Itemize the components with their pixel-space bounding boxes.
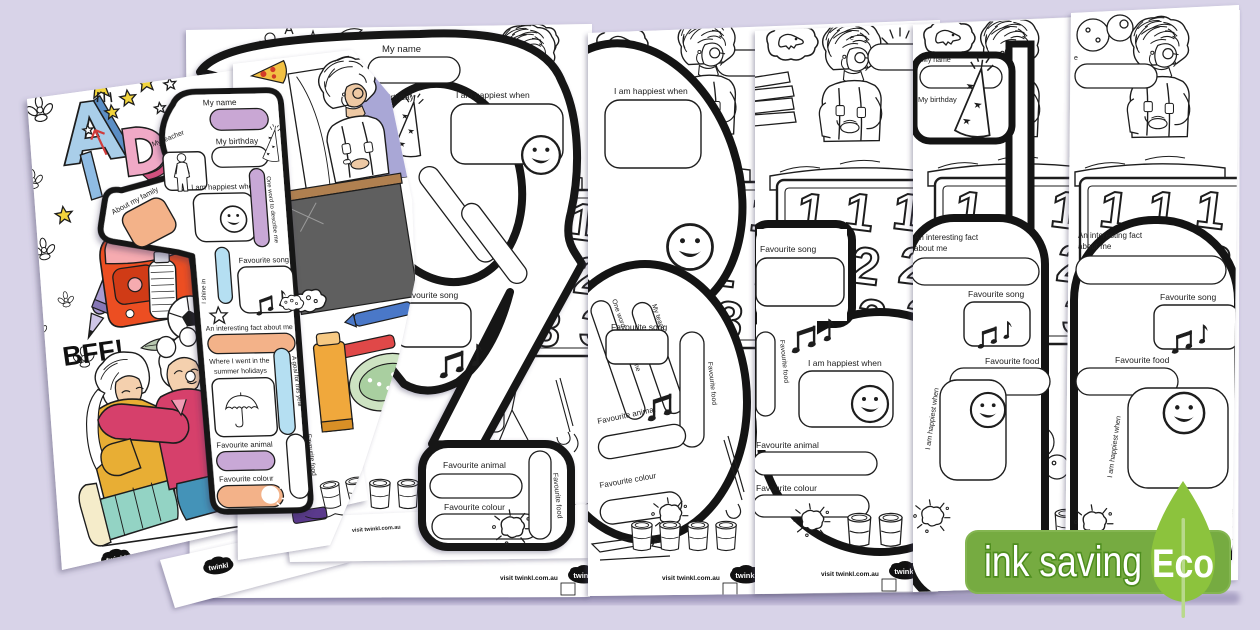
svg-text:e: e	[850, 35, 854, 42]
svg-text:An interesting fact: An interesting fact	[1078, 231, 1143, 240]
svg-text:Favourite song: Favourite song	[1160, 292, 1216, 302]
svg-text:Favourite song: Favourite song	[760, 244, 816, 254]
svg-text:Favourite colour: Favourite colour	[444, 502, 505, 512]
svg-text:I am happiest when: I am happiest when	[614, 86, 688, 96]
svg-text:about me: about me	[1078, 242, 1112, 251]
svg-text:I am happiest when: I am happiest when	[808, 358, 882, 368]
svg-text:My name: My name	[922, 57, 951, 64]
svg-text:An interesting fact: An interesting fact	[914, 233, 979, 242]
svg-text:My name: My name	[382, 44, 421, 55]
svg-text:visit twinkl.com.au: visit twinkl.com.au	[500, 575, 558, 582]
svg-text:Favourite colour: Favourite colour	[756, 483, 817, 493]
svg-text:Favourite song: Favourite song	[968, 289, 1024, 299]
svg-text:My birthday: My birthday	[918, 95, 957, 104]
svg-text:I am happiest when: I am happiest when	[191, 182, 258, 192]
svg-text:Favourite food: Favourite food	[985, 356, 1040, 366]
svg-text:Favourite animal: Favourite animal	[443, 460, 506, 470]
svg-text:visit twinkl.com.au: visit twinkl.com.au	[662, 575, 720, 582]
svg-text:ink saving: ink saving	[984, 538, 1142, 586]
svg-text:e: e	[1074, 55, 1078, 62]
svg-text:Favourite song: Favourite song	[238, 255, 289, 265]
svg-text:Favourite food: Favourite food	[1115, 355, 1170, 365]
svg-text:I am happiest when: I am happiest when	[456, 90, 530, 100]
svg-text:summer holidays: summer holidays	[214, 368, 268, 376]
svg-text:Favourite animal: Favourite animal	[216, 440, 273, 450]
svg-text:Favourite animal: Favourite animal	[756, 440, 819, 450]
svg-text:Eco: Eco	[1152, 542, 1214, 586]
svg-text:about me: about me	[914, 244, 948, 253]
svg-text:My birthday: My birthday	[215, 137, 259, 147]
svg-text:I shine in: I shine in	[200, 278, 208, 304]
svg-text:visit twinkl.com.au: visit twinkl.com.au	[821, 571, 879, 578]
svg-text:My name: My name	[203, 98, 238, 108]
svg-text:Favourite colour: Favourite colour	[219, 474, 275, 484]
svg-text:Where I went in the: Where I went in the	[209, 358, 270, 366]
